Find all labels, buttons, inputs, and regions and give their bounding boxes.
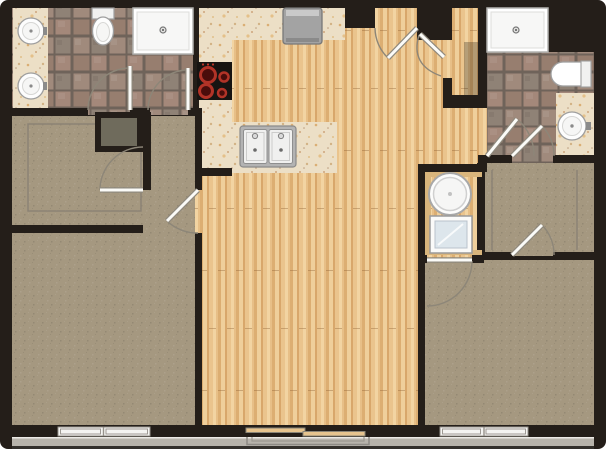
kitchen-side-counter-lower <box>197 100 232 168</box>
faucet-icon <box>43 27 47 35</box>
faucet-icon <box>278 133 283 138</box>
faucet-icon <box>252 133 257 138</box>
floor-plan <box>0 0 606 449</box>
bedroom-1-floor <box>12 233 195 425</box>
window-bedroom-1 <box>58 427 150 436</box>
floors <box>12 8 594 425</box>
window-bedroom-2 <box>440 427 528 436</box>
entry-closet-shadow <box>464 42 478 95</box>
faucet-icon <box>586 122 591 130</box>
kitchen-side-counter-upper <box>197 8 232 62</box>
faucet-icon <box>43 82 47 90</box>
bedroom-2-floor <box>425 260 594 425</box>
linen-niche <box>101 118 137 146</box>
exterior <box>12 427 594 449</box>
